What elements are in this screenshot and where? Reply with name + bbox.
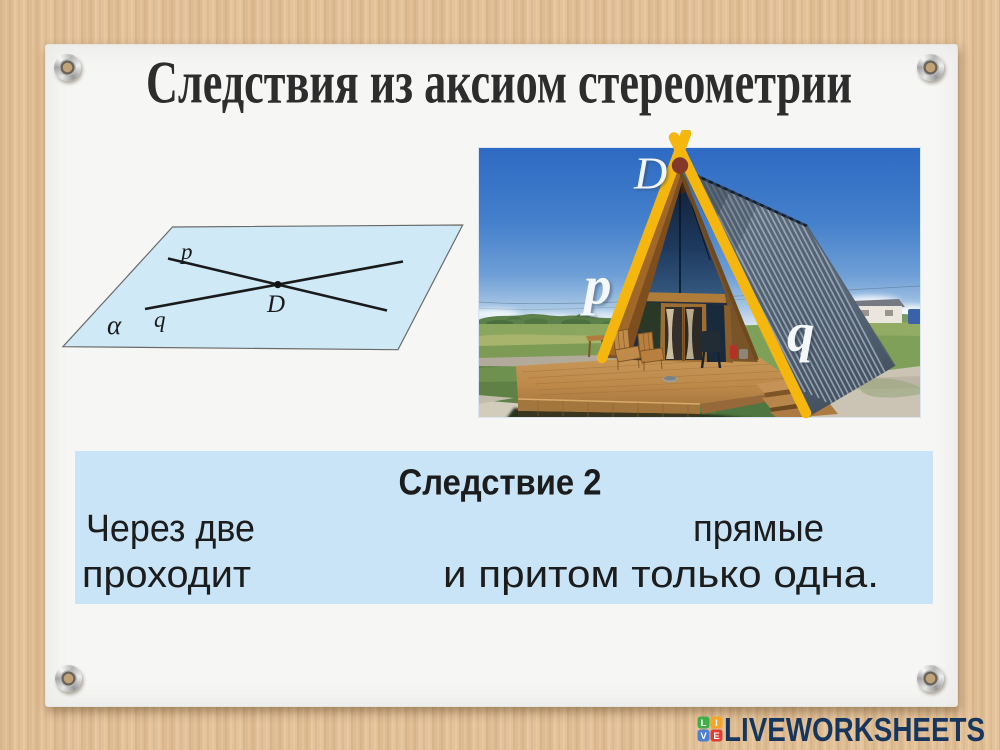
- svg-text:LIVEWORKSHEETS: LIVEWORKSHEETS: [724, 715, 985, 745]
- svg-text:p: p: [179, 239, 193, 264]
- svg-text:V: V: [700, 731, 707, 742]
- svg-text:L: L: [701, 718, 707, 729]
- svg-text:D: D: [266, 291, 285, 318]
- svg-text:p: p: [580, 255, 612, 316]
- svg-text:Через две: Через две: [86, 508, 255, 550]
- svg-text:α: α: [107, 310, 122, 340]
- svg-text:прямые: прямые: [693, 508, 824, 550]
- svg-text:q: q: [787, 302, 815, 363]
- svg-text:Следствия из аксиом стереометр: Следствия из аксиом стереометрии: [146, 50, 852, 116]
- svg-text:q: q: [154, 307, 166, 332]
- svg-text:D: D: [633, 148, 667, 199]
- svg-text:и притом только одна.: и притом только одна.: [443, 554, 879, 596]
- svg-text:Следствие 2: Следствие 2: [399, 462, 602, 503]
- svg-text:E: E: [713, 731, 719, 742]
- svg-text:I: I: [715, 718, 718, 729]
- svg-text:проходит: проходит: [82, 554, 251, 596]
